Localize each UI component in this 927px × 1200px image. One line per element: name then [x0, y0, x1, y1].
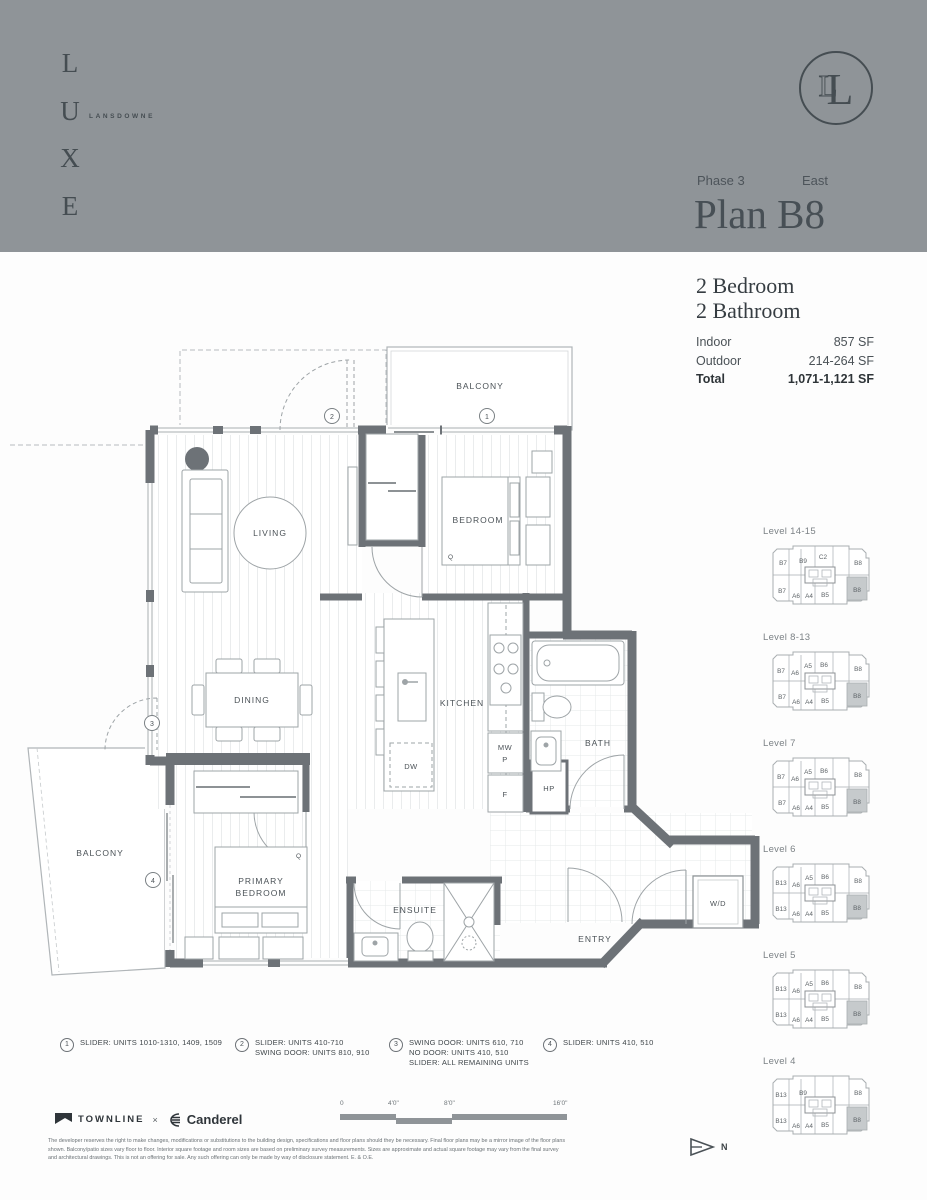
- toilet: [532, 693, 544, 721]
- keyplan-unit-label: A5: [805, 875, 813, 882]
- keyplan-unit-label: B8: [853, 1011, 861, 1018]
- note-text: SLIDER: UNITS 410-710: [255, 1038, 370, 1048]
- keyplan-unit-label: B7: [779, 560, 787, 567]
- north-label: N: [721, 1142, 728, 1152]
- keyplan-unit-label: B8: [854, 560, 862, 567]
- keyplan-unit-label: B9: [799, 1090, 807, 1097]
- heat-pump-label: HP: [543, 784, 554, 793]
- note-text: SWING DOOR: UNITS 610, 710: [409, 1038, 529, 1048]
- note-text: NO DOOR: UNITS 410, 510: [409, 1048, 529, 1058]
- keyplan-unit-label: B13: [775, 1092, 787, 1099]
- note-text: SLIDER: ALL REMAINING UNITS: [409, 1058, 529, 1068]
- keyplan-unit-label: A6: [792, 1017, 800, 1024]
- kitchen-label: KITCHEN: [440, 698, 484, 708]
- keyplan-unit-label: B6: [821, 980, 829, 987]
- keyplan-unit-label: B13: [775, 986, 787, 993]
- primary-q-label: Q: [296, 853, 301, 860]
- plan-note-1: 1SLIDER: UNITS 1010-1310, 1409, 1509: [60, 1038, 222, 1052]
- keyplan-unit-label: A4: [805, 699, 813, 706]
- keyplan-level-label: Level 7: [763, 738, 893, 749]
- note-text: SWING DOOR: UNITS 810, 910: [255, 1048, 370, 1058]
- keyplan-unit-label: B7: [777, 774, 785, 781]
- bathrooms-label: 2 Bathroom: [696, 298, 801, 323]
- indoor-value: 857 SF: [834, 333, 874, 352]
- keyplan-diagram: B7B9C2B8B7A6A4B5B8: [763, 541, 875, 611]
- bedroom-q-label: Q: [448, 554, 453, 561]
- primary-closet: [194, 771, 298, 813]
- townline-flag-icon: [55, 1113, 72, 1126]
- keyplan-unit-label: A4: [805, 1017, 813, 1024]
- keyplan-diagram: B13A6A5B6B8B13A6A4B5B8: [763, 965, 875, 1035]
- luxe-logo-monogram: L L: [790, 42, 882, 134]
- living-label: LIVING: [253, 528, 287, 538]
- svg-text:L: L: [819, 68, 838, 103]
- floorplan-drawing: BALCONY BALCONY: [10, 335, 770, 1035]
- keyplan-unit-label: B5: [821, 804, 829, 811]
- orientation-label: East: [802, 173, 828, 188]
- keyplan-unit-label: B8: [854, 984, 862, 991]
- keyplan-unit-label: B8: [853, 799, 861, 806]
- keyplan-unit-label: B6: [820, 768, 828, 775]
- bedroom-closet: [366, 434, 418, 540]
- primary-label-2: BEDROOM: [236, 888, 287, 898]
- island-sink: [398, 673, 426, 721]
- canderel-icon: [166, 1113, 184, 1127]
- scale-4: 4'0": [388, 1100, 399, 1107]
- keyplan-diagram: B13A6A5B6B8B13A6A4B5B8: [763, 859, 875, 929]
- note-text: SLIDER: UNITS 410, 510: [563, 1038, 654, 1048]
- scale-0: 0: [340, 1100, 344, 1107]
- washer-dryer-label: W/D: [710, 899, 726, 908]
- keyplan-unit-label: A4: [805, 911, 813, 918]
- header-band: LUXE LANSDOWNE L L Phase 3 East Plan B8: [0, 0, 927, 252]
- bathtub: [532, 641, 624, 685]
- phase-label: Phase 3: [697, 173, 745, 188]
- bedrooms-label: 2 Bedroom: [696, 273, 801, 298]
- north-arrow-icon: [688, 1136, 716, 1158]
- primary-label-1: PRIMARY: [238, 876, 284, 886]
- keyplan-unit-label: B13: [775, 906, 787, 913]
- keyplan-unit-label: B5: [821, 592, 829, 599]
- plan-title: Plan B8: [694, 190, 825, 238]
- keyplan-unit-label: A6: [792, 882, 800, 889]
- keyplan-unit-label: B8: [854, 878, 862, 885]
- keyplan-level-5: Level 5B13A6A5B6B8B13A6A4B5B8: [763, 950, 893, 1040]
- keyplan-unit-label: B13: [775, 1118, 787, 1125]
- brand-separator: ×: [153, 1115, 158, 1125]
- keyplan-unit-label: B7: [778, 800, 786, 807]
- keyplan-unit-label: B8: [854, 772, 862, 779]
- keyplan-unit-label: B6: [821, 874, 829, 881]
- scale-seg-1: [340, 1114, 396, 1120]
- fridge-label: F: [502, 790, 507, 799]
- keyplan-unit-label: B8: [853, 693, 861, 700]
- keyplan-unit-label: B7: [778, 588, 786, 595]
- legal-disclaimer: The developer reserves the right to make…: [48, 1137, 566, 1163]
- keyplan-level-label: Level 14-15: [763, 526, 893, 537]
- keyplan-level-label: Level 6: [763, 844, 893, 855]
- callout-2: 2: [330, 414, 334, 421]
- ensuite-label: ENSUITE: [393, 905, 437, 915]
- keyplan-unit-label: A4: [805, 593, 813, 600]
- entry-label: ENTRY: [578, 934, 612, 944]
- keyplan-unit-label: A6: [792, 1123, 800, 1130]
- townline-wordmark: TOWNLINE: [78, 1114, 145, 1125]
- floorplan-sheet: LUXE LANSDOWNE L L Phase 3 East Plan B8 …: [0, 0, 927, 1200]
- plan-note-2: 2SLIDER: UNITS 410-710SWING DOOR: UNITS …: [235, 1038, 370, 1058]
- keyplan-unit-label: B7: [778, 694, 786, 701]
- keyplan-level-label: Level 5: [763, 950, 893, 961]
- keyplan-level-label: Level 8-13: [763, 632, 893, 643]
- callout-4: 4: [151, 878, 155, 885]
- keyplan-unit-label: B7: [777, 668, 785, 675]
- keyplan-unit-label: B8: [853, 905, 861, 912]
- keyplan-level-7: Level 7B7A6A5B6B8B7A6A4B5B8: [763, 738, 893, 828]
- keyplan-unit-label: B6: [820, 662, 828, 669]
- keyplan-unit-label: B8: [854, 666, 862, 673]
- keyplan-level-14-15: Level 14-15B7B9C2B8B7A6A4B5B8: [763, 526, 893, 616]
- keyplan-unit-label: A6: [792, 593, 800, 600]
- keyplan-unit-label: A6: [792, 911, 800, 918]
- keyplan-unit-label: A6: [792, 699, 800, 706]
- kitchen-counter: MW P F: [488, 603, 523, 812]
- plan-note-4: 4SLIDER: UNITS 410, 510: [543, 1038, 654, 1052]
- keyplan-unit-label: A4: [805, 1123, 813, 1130]
- scale-16: 16'0": [553, 1100, 567, 1107]
- keyplan-unit-label: A5: [804, 769, 812, 776]
- keyplan-unit-label: B8: [853, 587, 861, 594]
- ensuite-toilet: [407, 922, 433, 952]
- scale-bar: 0 4'0" 8'0" 16'0": [340, 1100, 568, 1126]
- canderel-wordmark: Canderel: [187, 1112, 243, 1127]
- balcony-left: BALCONY: [28, 748, 165, 975]
- note-number-badge: 1: [60, 1038, 74, 1052]
- plant-icon: [185, 447, 209, 471]
- kitchen-island: DW: [376, 619, 434, 791]
- total-value: 1,071-1,121 SF: [788, 370, 874, 389]
- keyplan-unit-label: B8: [854, 1090, 862, 1097]
- keyplan-unit-label: B5: [821, 1016, 829, 1023]
- bedroom-label: BEDROOM: [453, 515, 504, 525]
- keyplan-unit-label: B5: [821, 698, 829, 705]
- balcony-left-label: BALCONY: [76, 848, 124, 858]
- callout-3: 3: [150, 721, 154, 728]
- keyplan-unit-label: B13: [775, 1012, 787, 1019]
- keyplan-unit-label: A5: [804, 663, 812, 670]
- keyplan-unit-label: A6: [792, 988, 800, 995]
- microwave-pantry: [488, 733, 523, 773]
- lansdowne-wordmark: LANSDOWNE: [89, 113, 155, 120]
- keyplan-diagram: B7A6A5B6B8B7A6A4B5B8: [763, 753, 875, 823]
- note-number-badge: 3: [389, 1038, 403, 1052]
- callout-1: 1: [485, 414, 489, 421]
- keyplan-unit-label: A5: [805, 981, 813, 988]
- bath-label: BATH: [585, 738, 611, 748]
- luxe-wordmark: LUXE: [55, 40, 85, 230]
- keyplan-unit-label: B8: [853, 1117, 861, 1124]
- dining-label: DINING: [234, 695, 270, 705]
- north-arrow: N: [688, 1136, 728, 1158]
- note-text: SLIDER: UNITS 1010-1310, 1409, 1509: [80, 1038, 222, 1048]
- keyplan-diagram: B7A6A5B6B8B7A6A4B5B8: [763, 647, 875, 717]
- outdoor-value: 214-264 SF: [809, 352, 874, 371]
- scale-8: 8'0": [444, 1100, 455, 1107]
- keyplan-level-6: Level 6B13A6A5B6B8B13A6A4B5B8: [763, 844, 893, 934]
- scale-seg-3: [452, 1114, 567, 1120]
- keyplan-diagram: B13B9B8B13A6A4B5B8: [763, 1071, 875, 1141]
- pantry-label: P: [502, 755, 508, 764]
- scale-seg-2: [396, 1118, 452, 1124]
- balcony-top-label: BALCONY: [456, 381, 504, 391]
- tv-console: [348, 467, 357, 545]
- keyplan-unit-label: B13: [775, 880, 787, 887]
- plan-notes: 1SLIDER: UNITS 1010-1310, 1409, 15092SLI…: [48, 1038, 888, 1078]
- keyplan-unit-label: A6: [792, 805, 800, 812]
- keyplan-unit-label: C2: [819, 554, 828, 561]
- dishwasher-label: DW: [404, 762, 418, 771]
- keyplan-unit-label: B9: [799, 558, 807, 565]
- keyplan-level-8-13: Level 8-13B7A6A5B6B8B7A6A4B5B8: [763, 632, 893, 722]
- keyplan-unit-label: A6: [791, 670, 799, 677]
- keyplan-unit-label: B5: [821, 1122, 829, 1129]
- developer-brands: TOWNLINE × Canderel: [55, 1112, 242, 1127]
- keyplan-unit-label: A4: [805, 805, 813, 812]
- unit-summary-title: 2 Bedroom 2 Bathroom: [696, 273, 801, 323]
- microwave-label: MW: [498, 743, 513, 752]
- note-number-badge: 4: [543, 1038, 557, 1052]
- plan-note-3: 3SWING DOOR: UNITS 610, 710NO DOOR: UNIT…: [389, 1038, 529, 1068]
- keyplan-unit-label: A6: [791, 776, 799, 783]
- note-number-badge: 2: [235, 1038, 249, 1052]
- keyplan-unit-label: B5: [821, 910, 829, 917]
